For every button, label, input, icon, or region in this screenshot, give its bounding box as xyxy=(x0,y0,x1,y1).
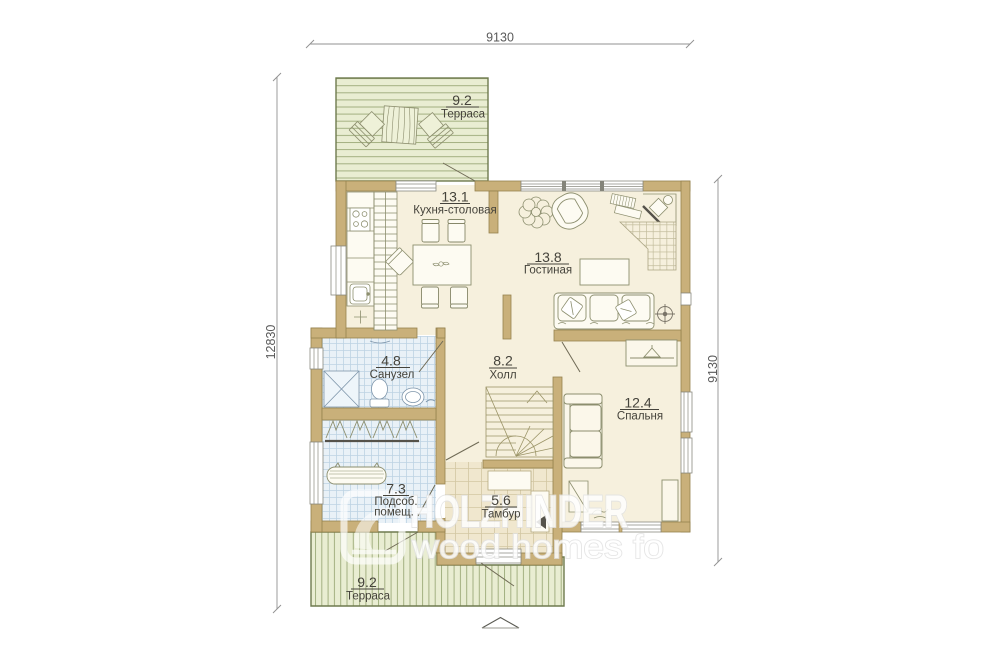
svg-text:Санузел: Санузел xyxy=(370,369,415,381)
svg-text:5.6: 5.6 xyxy=(491,492,511,508)
svg-text:7.3: 7.3 xyxy=(386,481,406,497)
svg-text:Терраса: Терраса xyxy=(441,109,486,121)
svg-text:12.4: 12.4 xyxy=(624,395,651,411)
svg-text:12830: 12830 xyxy=(264,325,278,360)
svg-text:wood homes fo: wood homes fo xyxy=(411,528,664,565)
svg-text:Холл: Холл xyxy=(489,370,516,382)
svg-text:8.2: 8.2 xyxy=(493,353,513,369)
svg-text:Гостиная: Гостиная xyxy=(524,265,572,277)
svg-text:Тамбур: Тамбур xyxy=(481,509,520,521)
svg-text:Спальня: Спальня xyxy=(617,411,663,423)
svg-text:9130: 9130 xyxy=(486,31,514,45)
svg-text:9.2: 9.2 xyxy=(452,92,472,108)
svg-text:Кухня-столовая: Кухня-столовая xyxy=(413,205,496,217)
svg-text:9130: 9130 xyxy=(706,355,720,383)
svg-text:помещ.: помещ. xyxy=(374,507,414,519)
svg-text:Терраса: Терраса xyxy=(346,591,391,603)
svg-text:13.8: 13.8 xyxy=(534,249,561,265)
svg-text:9.2: 9.2 xyxy=(357,574,377,590)
svg-text:13.1: 13.1 xyxy=(441,189,468,205)
svg-text:4.8: 4.8 xyxy=(381,353,401,369)
